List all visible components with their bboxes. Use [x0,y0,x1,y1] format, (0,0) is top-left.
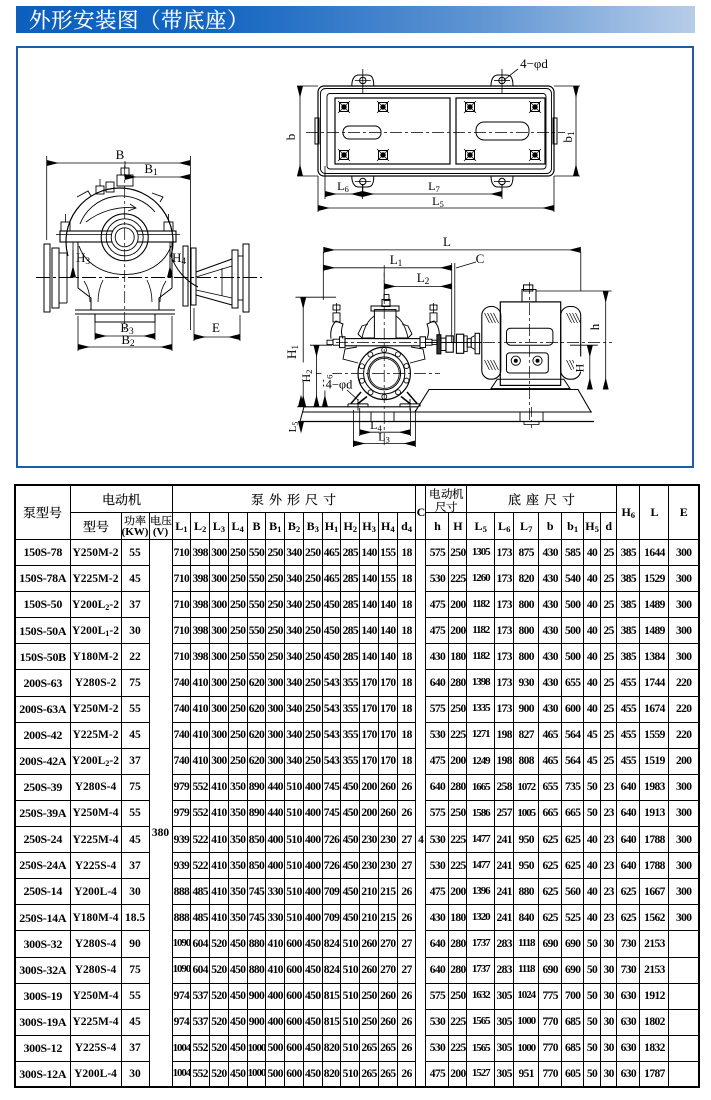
svg-text:B: B [116,147,125,162]
svg-text:L1: L1 [390,252,403,269]
svg-text:b: b [283,134,298,141]
svg-text:L5: L5 [432,194,444,209]
svg-text:E: E [212,320,220,335]
svg-text:4−φd: 4−φd [520,56,548,71]
svg-text:L2: L2 [417,270,430,287]
svg-text:h: h [587,323,602,330]
svg-text:C: C [476,251,485,266]
svg-text:H3: H3 [76,250,90,267]
svg-text:H: H [573,363,587,372]
svg-text:L3: L3 [378,430,390,445]
svg-text:4−φd: 4−φd [326,378,354,392]
svg-text:L6: L6 [337,179,349,194]
svg-text:L: L [443,234,451,249]
svg-text:H4: H4 [172,250,186,267]
svg-text:B1: B1 [144,161,158,178]
svg-text:L7: L7 [428,179,440,194]
